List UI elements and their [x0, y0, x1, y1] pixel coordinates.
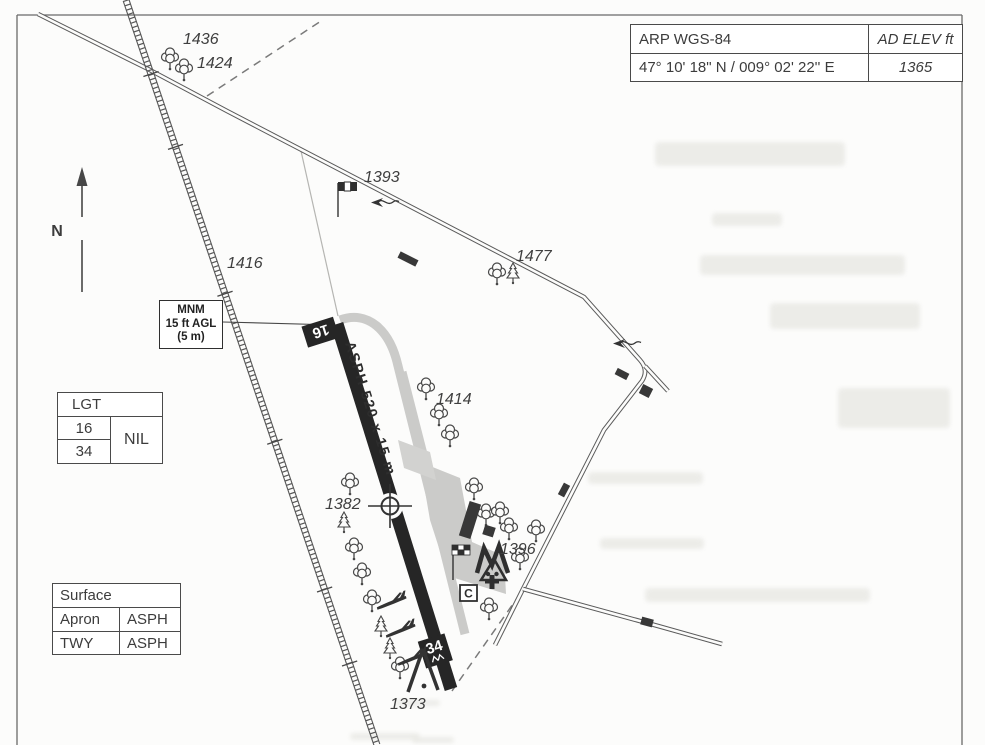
tree-icon: [176, 59, 193, 81]
lgt-value-cell: NIL: [110, 417, 162, 463]
building: [482, 525, 495, 538]
runway-16-label: 16: [301, 317, 339, 348]
customs-reporting-box: C: [460, 585, 477, 601]
building: [398, 251, 419, 266]
farm-track: [301, 151, 338, 316]
conifer-icon: [375, 616, 387, 637]
arp-header-cell: ARP WGS-84: [631, 25, 868, 53]
tree-icon: [442, 425, 459, 447]
elevation-label-1477: 1477: [516, 248, 553, 265]
svg-text:C: C: [464, 587, 473, 601]
elevation-label-1396: 1396: [500, 541, 536, 558]
tree-icon: [481, 598, 498, 620]
elevation-label-1373: 1373: [390, 696, 426, 713]
surface-twy-value-cell: ASPH: [119, 631, 180, 654]
elevation-label-1414: 1414: [436, 391, 472, 408]
tree-icon: [342, 473, 359, 495]
elevation-label-1424: 1424: [197, 55, 233, 72]
lgt-table: LGT 16 NIL 34: [57, 392, 163, 464]
lgt-rwy16-cell: 16: [58, 417, 110, 440]
conifer-icon: [338, 512, 350, 533]
runway-dimensions-label: ASPH 520 x 15 m: [341, 340, 398, 479]
surface-apron-value-cell: ASPH: [119, 608, 180, 631]
tree-icon: [489, 263, 506, 285]
tree-icon: [346, 538, 363, 560]
info-table: ARP WGS-84 AD ELEV ft 47° 10' 18" N / 00…: [630, 24, 963, 82]
surface-apron-cell: Apron: [53, 608, 119, 631]
elevation-label-1436: 1436: [183, 31, 219, 48]
elevation-label-1416: 1416: [227, 255, 263, 272]
building: [640, 617, 654, 628]
mnm-line3: (5 m): [161, 331, 221, 345]
arp-coordinates-cell: 47° 10' 18" N / 009° 02' 22'' E: [631, 53, 868, 81]
aerodrome-chart-page: 16 34 ASPH 520 x 15 m: [0, 0, 985, 745]
spot-elevation-labels: 1436 1424 1393 1477 1416 1414 1382 1396 …: [183, 31, 553, 713]
elevation-label-1393: 1393: [364, 169, 400, 186]
ad-elevation-cell: 1365: [868, 53, 962, 81]
building: [615, 368, 630, 380]
building: [639, 384, 653, 398]
lgt-title-cell: LGT: [58, 393, 162, 417]
tree-icon: [501, 518, 518, 540]
north-arrow: N: [51, 167, 87, 292]
tree-icon: [466, 478, 483, 500]
elevation-label-1382: 1382: [325, 496, 361, 513]
tree-icon: [354, 563, 371, 585]
tree-icon: [418, 378, 435, 400]
ad-elev-header-cell: AD ELEV ft: [868, 25, 962, 53]
mnm-line2: 15 ft AGL: [161, 318, 221, 332]
conifer-icon: [507, 263, 519, 284]
glider-icon: [384, 618, 418, 637]
north-label: N: [51, 223, 63, 240]
surface-twy-cell: TWY: [53, 631, 119, 654]
surface-title-cell: Surface: [53, 584, 180, 608]
buildings: [398, 251, 654, 627]
windsock-icon: [338, 182, 357, 217]
mnm-box: MNM 15 ft AGL (5 m): [159, 300, 223, 349]
tree-icon: [528, 520, 545, 542]
mnm-line1: MNM: [161, 304, 221, 318]
lgt-rwy34-cell: 34: [58, 440, 110, 463]
conifer-icon: [384, 638, 396, 659]
surface-table: Surface Apron ASPH TWY ASPH: [52, 583, 181, 655]
